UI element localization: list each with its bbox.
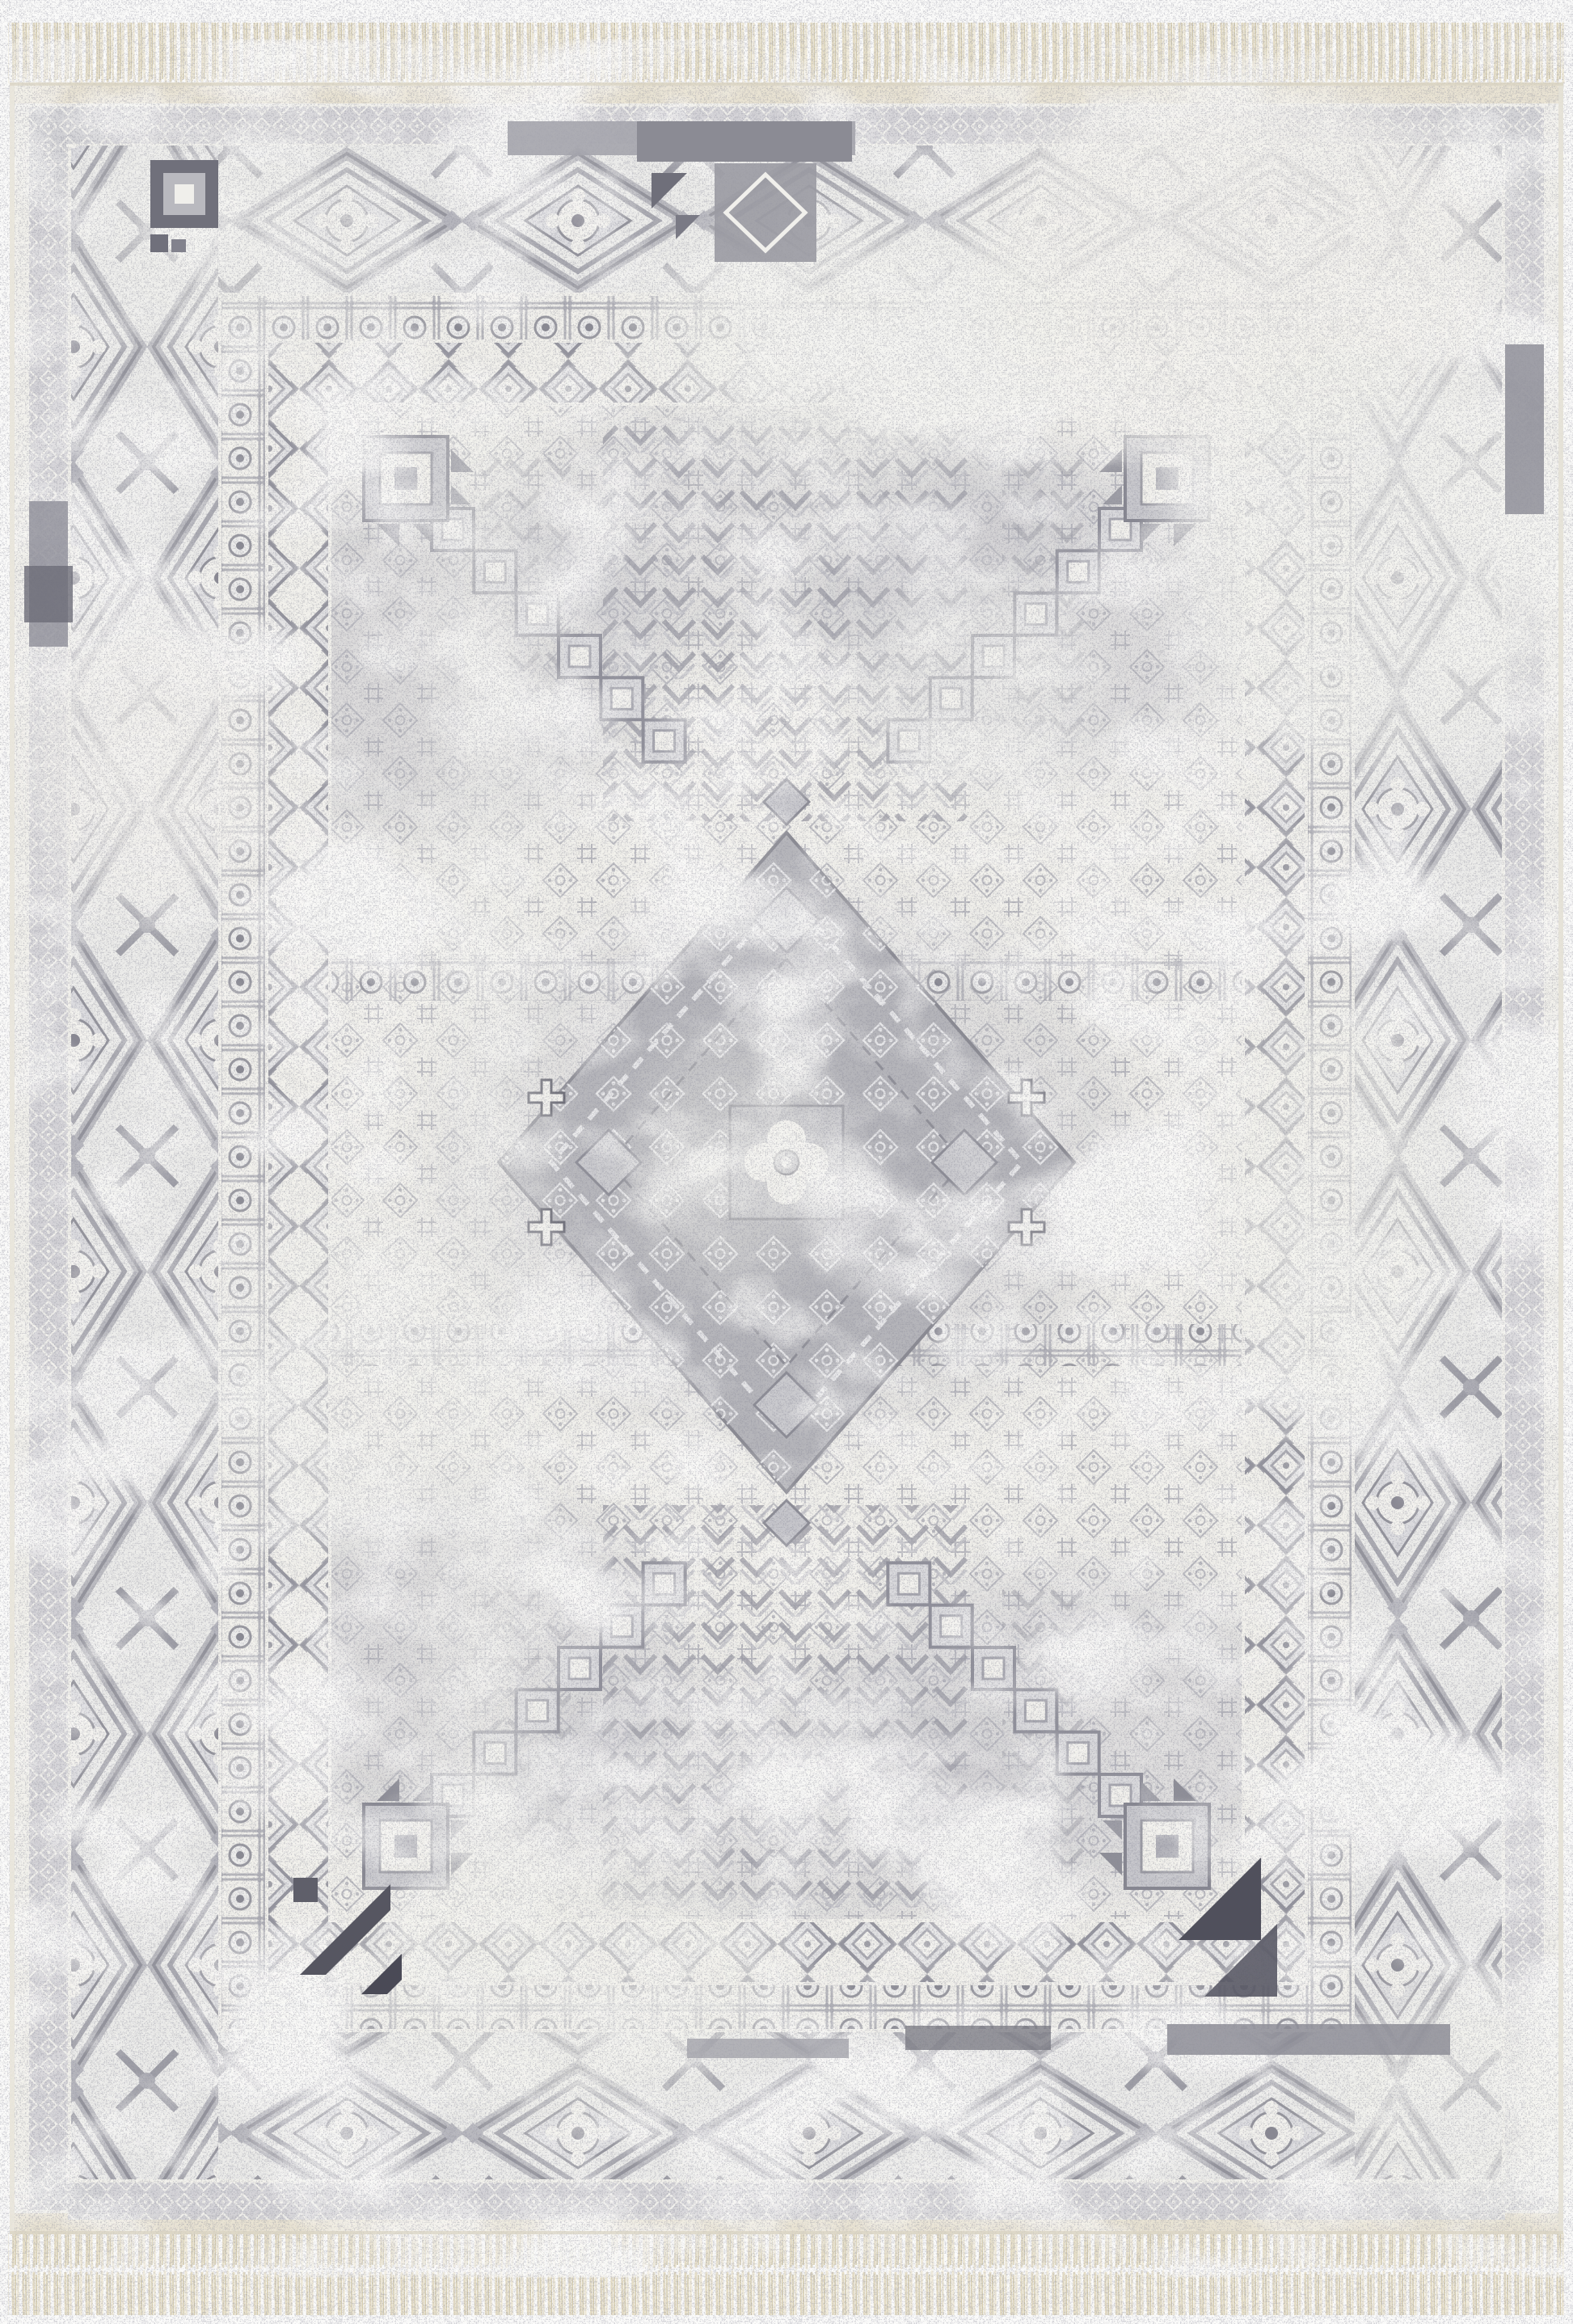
speckle-grain <box>10 82 1563 2234</box>
fringe-bottom <box>8 2233 1565 2315</box>
dark-segment-right-border <box>1505 344 1544 514</box>
rug-product-photo <box>0 0 1573 2324</box>
rug-body <box>10 81 1573 2234</box>
dark-segment-left-border <box>24 501 73 647</box>
rug-canvas <box>0 0 1573 2324</box>
fringe-top <box>8 23 1565 87</box>
